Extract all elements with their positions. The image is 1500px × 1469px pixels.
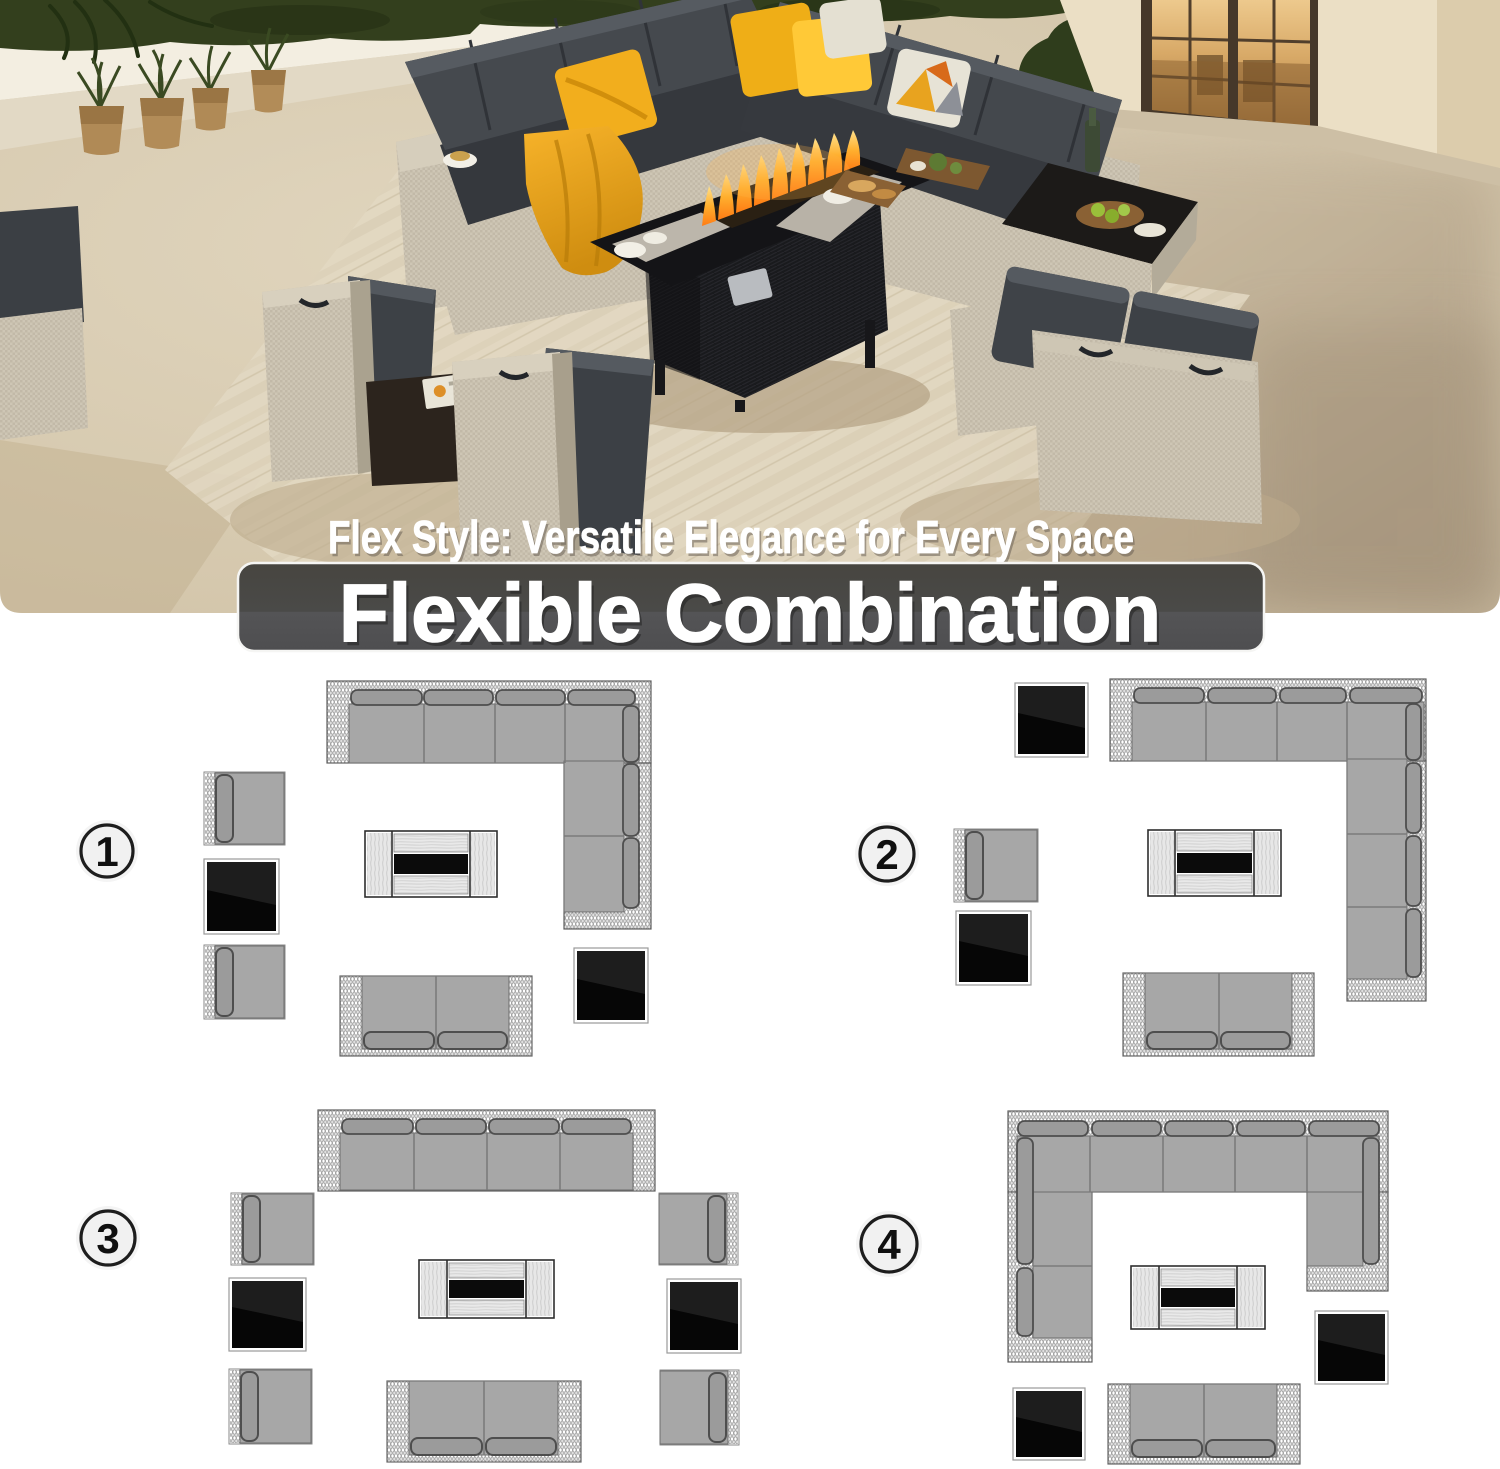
svg-text:Flex Style: Versatile Elegance: Flex Style: Versatile Elegance for Every… (328, 511, 1134, 563)
svg-text:4: 4 (877, 1221, 901, 1268)
svg-text:2: 2 (875, 831, 898, 878)
svg-text:3: 3 (96, 1215, 119, 1262)
svg-text:Flexible Combination: Flexible Combination (339, 568, 1161, 659)
svg-text:1: 1 (95, 828, 118, 875)
